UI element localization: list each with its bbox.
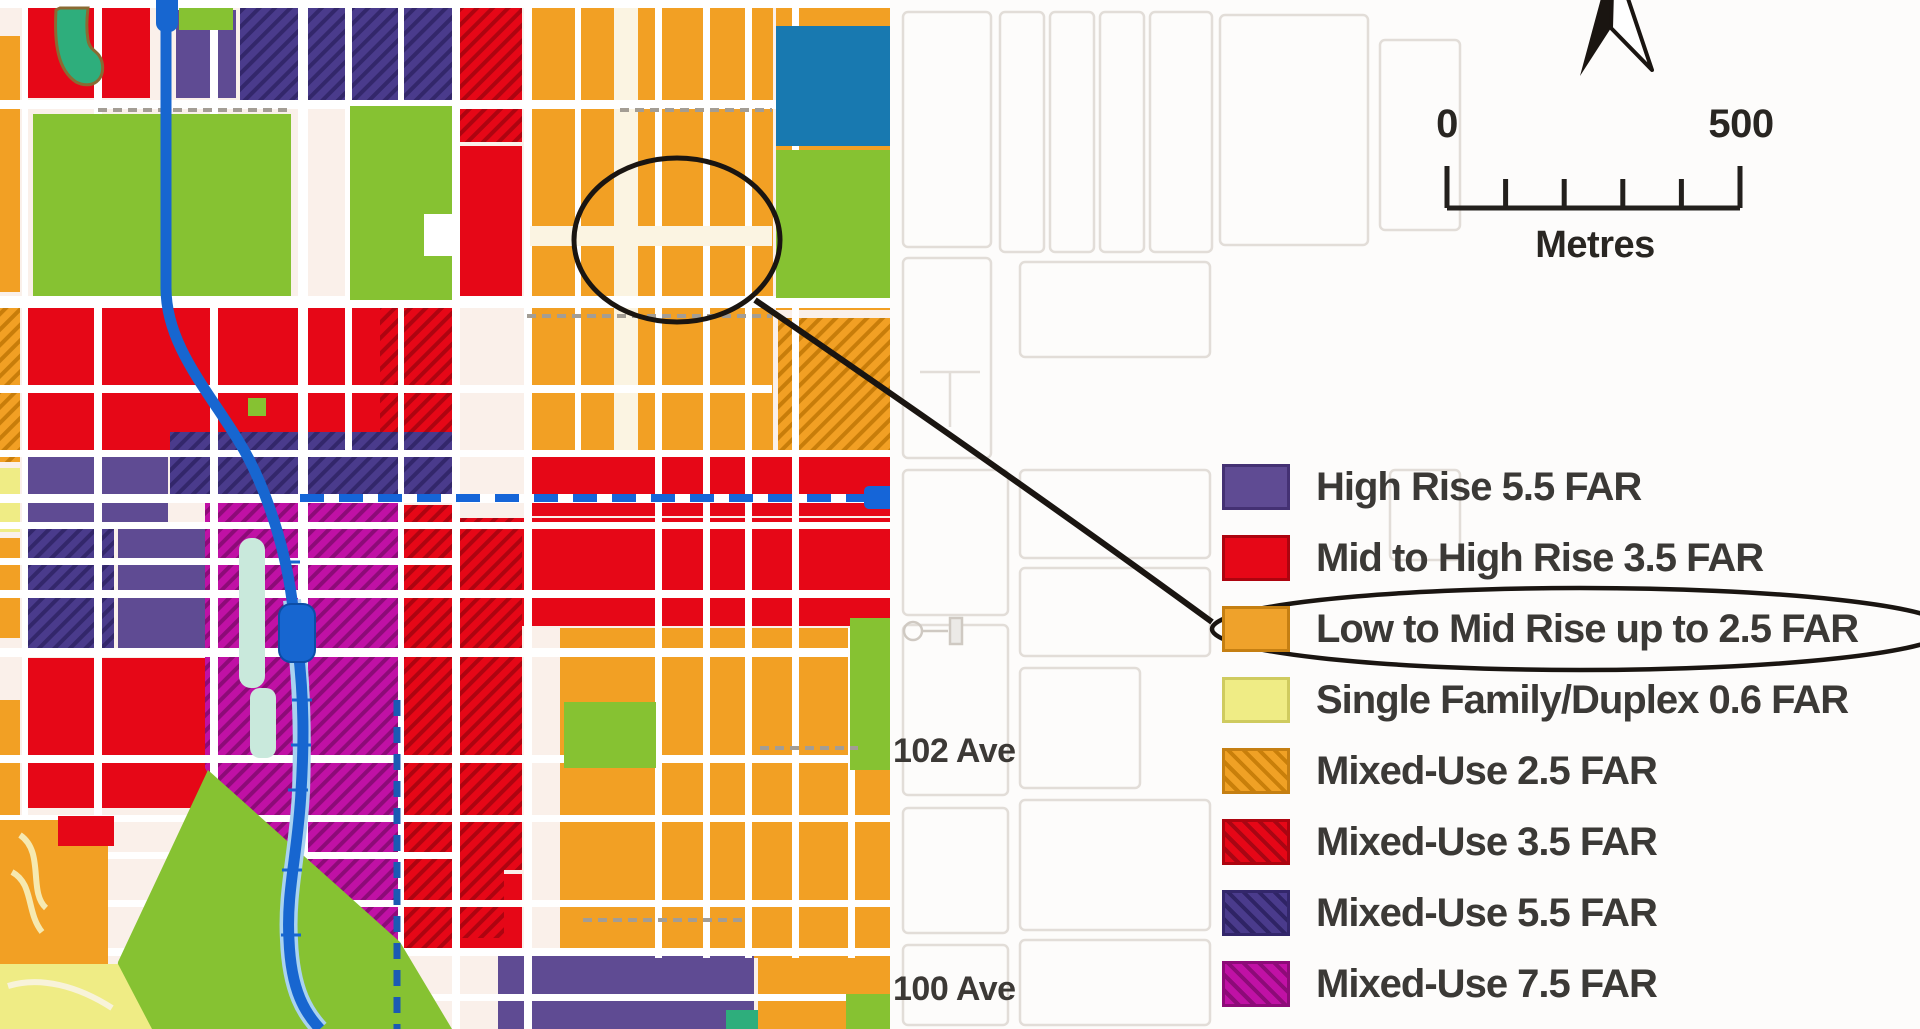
legend-label: Low to Mid Rise up to 2.5 FAR xyxy=(1316,606,1858,652)
lrt-station xyxy=(279,604,315,662)
legend-swatch xyxy=(1222,890,1290,936)
legend-label: Mixed-Use 5.5 FAR xyxy=(1316,890,1657,936)
legend-item-2: Mid to High Rise 3.5 FAR xyxy=(1222,535,1763,581)
legend-label: Single Family/Duplex 0.6 FAR xyxy=(1316,677,1848,723)
scale-unit-label: Metres xyxy=(1495,224,1695,267)
legend-label: High Rise 5.5 FAR xyxy=(1316,464,1641,510)
scale-end-label: 500 xyxy=(1686,102,1796,147)
faded-street-grid xyxy=(890,0,1920,1029)
legend-item-7: Mixed-Use 5.5 FAR xyxy=(1222,890,1657,936)
legend-item-6: Mixed-Use 3.5 FAR xyxy=(1222,819,1657,865)
legend-swatch xyxy=(1222,535,1290,581)
scale-start-label: 0 xyxy=(1417,102,1477,147)
street-label-102-ave: 102 Ave xyxy=(893,732,1016,771)
zoning-map-figure: 102 Ave 100 Ave 0 500 Metres High Rise 5… xyxy=(0,0,1920,1029)
legend-item-3: Low to Mid Rise up to 2.5 FAR xyxy=(1222,606,1858,652)
legend-item-1: High Rise 5.5 FAR xyxy=(1222,464,1641,510)
map-scene xyxy=(0,0,1920,1029)
legend-item-8: Mixed-Use 7.5 FAR xyxy=(1222,961,1657,1007)
street-label-100-ave: 100 Ave xyxy=(893,970,1016,1009)
lrt-station-top xyxy=(156,0,178,32)
legend-item-4: Single Family/Duplex 0.6 FAR xyxy=(1222,677,1848,723)
legend-swatch xyxy=(1222,677,1290,723)
legend-item-5: Mixed-Use 2.5 FAR xyxy=(1222,748,1657,794)
legend-label: Mixed-Use 7.5 FAR xyxy=(1316,961,1657,1007)
legend-swatch xyxy=(1222,819,1290,865)
legend-swatch xyxy=(1222,961,1290,1007)
legend-swatch xyxy=(1222,464,1290,510)
legend-swatch xyxy=(1222,748,1290,794)
legend-label: Mid to High Rise 3.5 FAR xyxy=(1316,535,1763,581)
legend-label: Mixed-Use 2.5 FAR xyxy=(1316,748,1657,794)
legend-swatch xyxy=(1222,606,1290,652)
zoning-map xyxy=(0,0,1038,1029)
legend-label: Mixed-Use 3.5 FAR xyxy=(1316,819,1657,865)
